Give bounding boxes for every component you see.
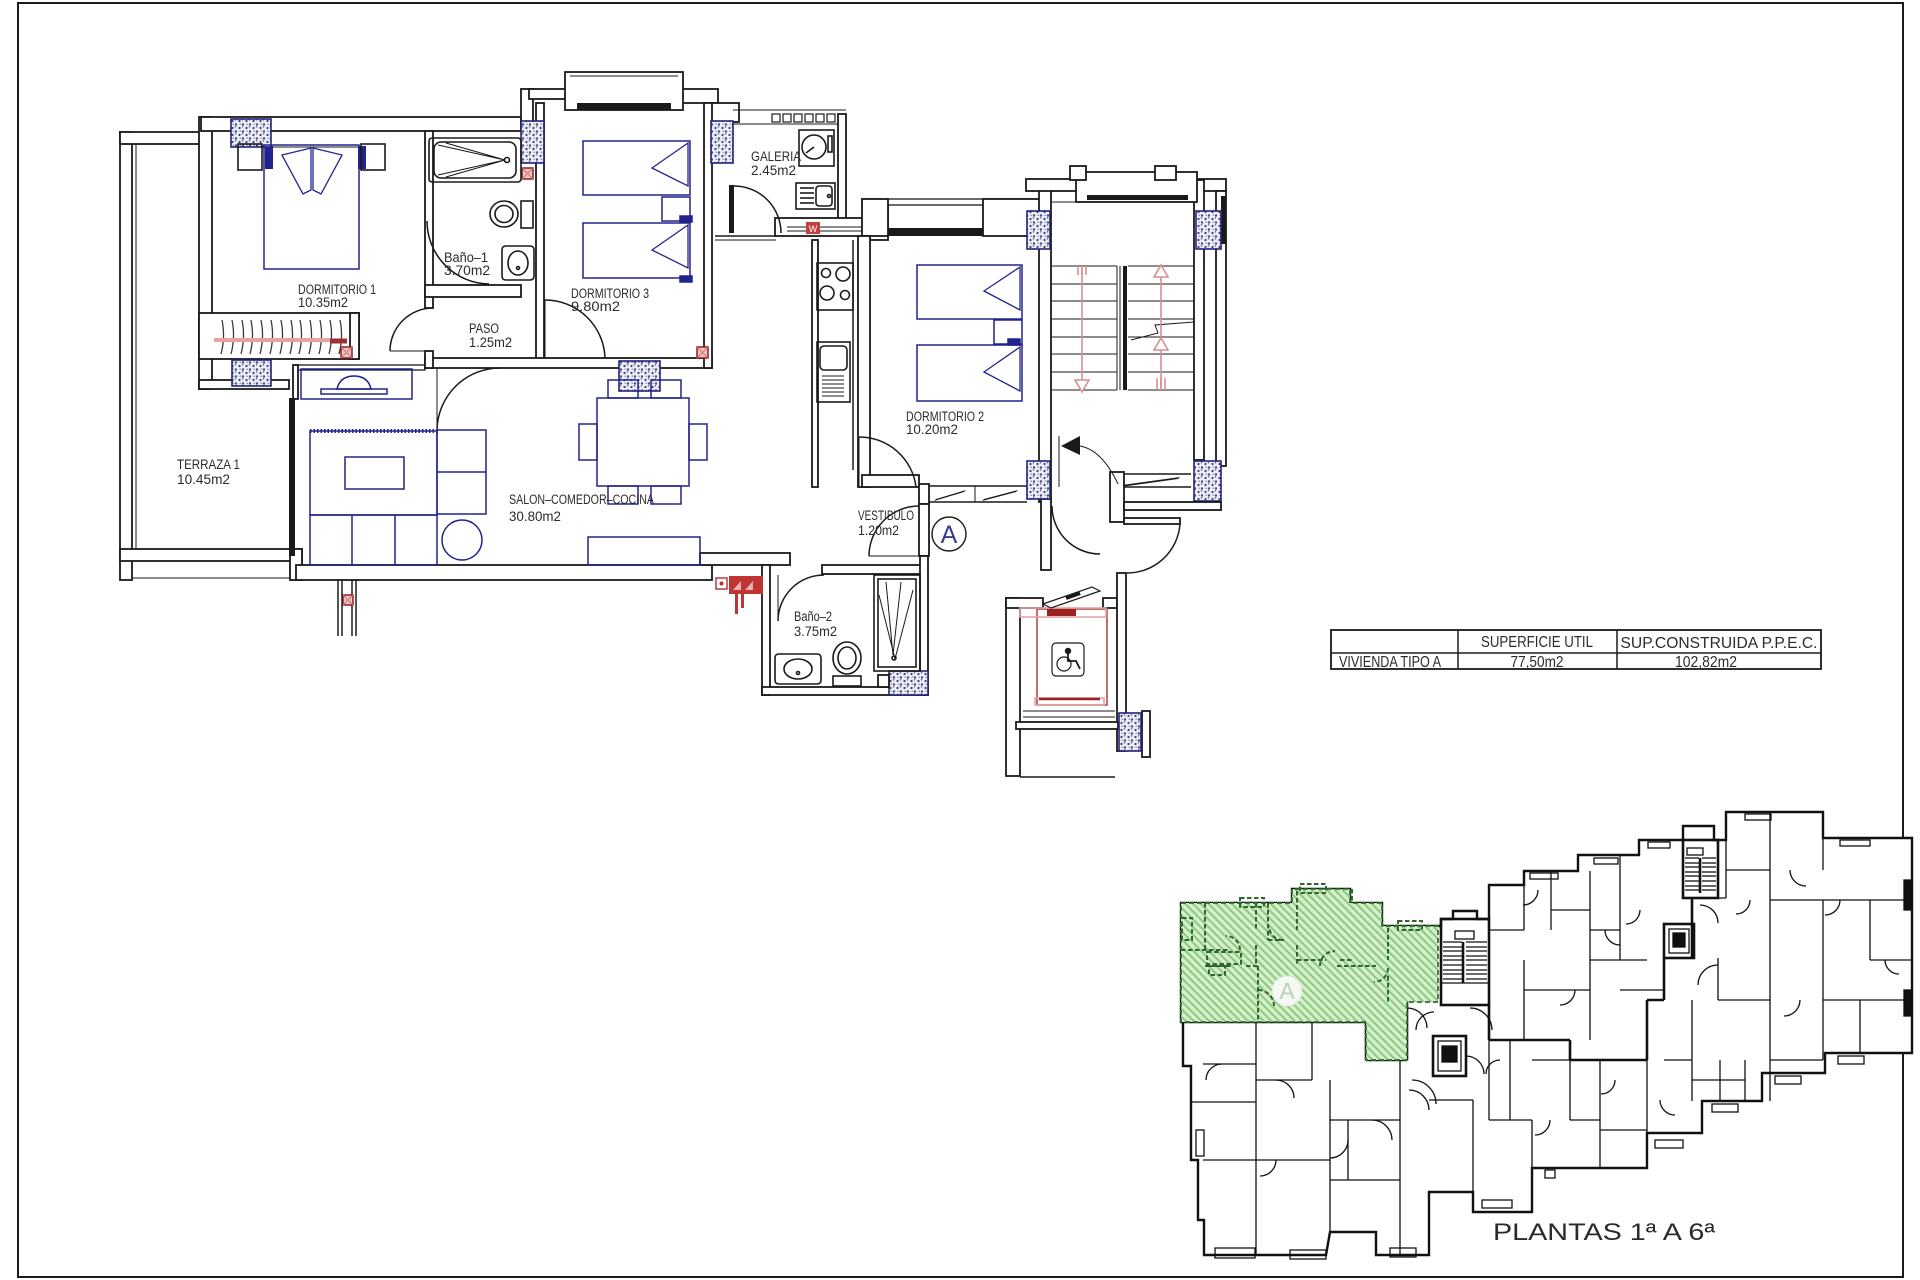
svg-text:SUPERFICIE UTIL: SUPERFICIE UTIL xyxy=(1481,634,1593,651)
svg-text:A: A xyxy=(1279,978,1295,1004)
svg-text:VIVIENDA TIPO A: VIVIENDA TIPO A xyxy=(1339,654,1441,671)
svg-text:102,82m2: 102,82m2 xyxy=(1675,654,1737,671)
svg-text:10.35m2: 10.35m2 xyxy=(298,295,348,310)
svg-text:SALON–COMEDOR–COCINA: SALON–COMEDOR–COCINA xyxy=(509,492,654,507)
svg-text:1.20m2: 1.20m2 xyxy=(858,523,899,538)
svg-text:77,50m2: 77,50m2 xyxy=(1511,654,1564,671)
svg-text:30.80m2: 30.80m2 xyxy=(509,509,561,524)
svg-text:W: W xyxy=(809,224,818,234)
svg-text:GALERIA: GALERIA xyxy=(751,149,801,164)
svg-text:TERRAZA 1: TERRAZA 1 xyxy=(177,457,240,472)
svg-text:10.20m2: 10.20m2 xyxy=(906,422,958,437)
svg-text:A: A xyxy=(941,521,958,549)
svg-text:Baño–2: Baño–2 xyxy=(794,609,832,624)
svg-text:PLANTAS 1ª A 6ª: PLANTAS 1ª A 6ª xyxy=(1493,1219,1715,1246)
svg-text:3.70m2: 3.70m2 xyxy=(444,263,490,278)
svg-text:2.45m2: 2.45m2 xyxy=(751,163,796,178)
svg-text:1.25m2: 1.25m2 xyxy=(469,335,512,350)
svg-text:9.80m2: 9.80m2 xyxy=(571,299,620,314)
svg-text:10.45m2: 10.45m2 xyxy=(177,472,230,487)
svg-text:PASO: PASO xyxy=(469,321,499,336)
svg-text:SUP.CONSTRUIDA P.P.E.C.: SUP.CONSTRUIDA P.P.E.C. xyxy=(1621,635,1818,652)
svg-text:VESTIBULO: VESTIBULO xyxy=(858,508,914,523)
svg-text:3.75m2: 3.75m2 xyxy=(794,624,837,639)
